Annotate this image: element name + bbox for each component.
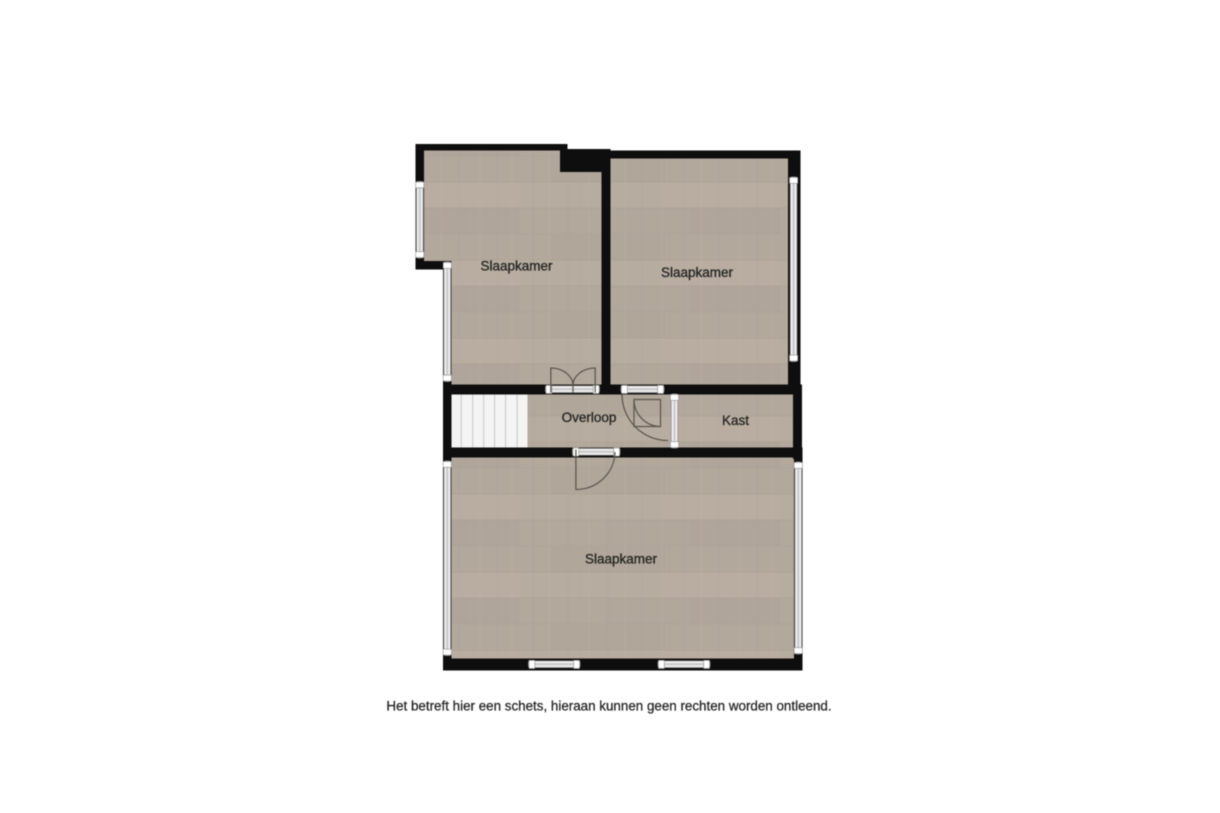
svg-text:Slaapkamer: Slaapkamer xyxy=(585,552,658,567)
svg-text:Overloop: Overloop xyxy=(562,410,617,425)
svg-text:Kast: Kast xyxy=(722,413,749,428)
svg-text:Slaapkamer: Slaapkamer xyxy=(661,265,734,280)
svg-text:Het betreft hier een schets, h: Het betreft hier een schets, hieraan kun… xyxy=(386,699,831,714)
svg-text:Slaapkamer: Slaapkamer xyxy=(480,259,553,274)
